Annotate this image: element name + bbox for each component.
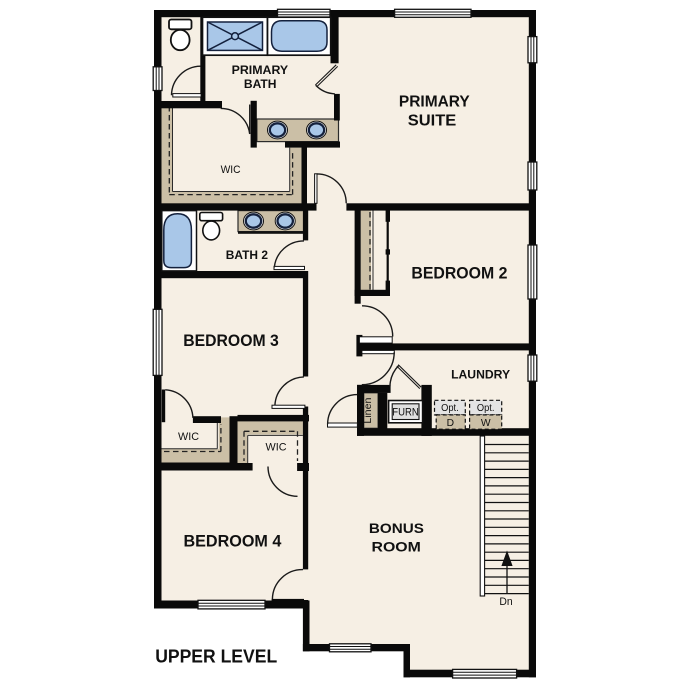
svg-text:PRIMARY: PRIMARY bbox=[399, 93, 470, 110]
svg-text:BEDROOM 4: BEDROOM 4 bbox=[183, 531, 282, 550]
svg-text:LAUNDRY: LAUNDRY bbox=[451, 367, 510, 381]
svg-text:ROOM: ROOM bbox=[372, 539, 421, 555]
svg-text:BONUS: BONUS bbox=[369, 520, 424, 536]
svg-text:PRIMARY: PRIMARY bbox=[232, 63, 289, 77]
svg-text:WIC: WIC bbox=[266, 442, 287, 454]
svg-text:FURN: FURN bbox=[392, 407, 419, 419]
svg-text:BATH 2: BATH 2 bbox=[226, 248, 268, 262]
svg-text:BEDROOM 3: BEDROOM 3 bbox=[183, 331, 279, 350]
svg-text:Opt.: Opt. bbox=[441, 403, 459, 414]
svg-text:Linen: Linen bbox=[363, 398, 374, 424]
svg-text:SUITE: SUITE bbox=[408, 112, 457, 129]
svg-text:Opt.: Opt. bbox=[477, 403, 495, 414]
svg-text:BATH: BATH bbox=[244, 77, 277, 91]
svg-text:D: D bbox=[447, 418, 454, 429]
svg-text:UPPER LEVEL: UPPER LEVEL bbox=[155, 646, 277, 667]
svg-text:WIC: WIC bbox=[178, 431, 199, 443]
svg-text:BEDROOM 2: BEDROOM 2 bbox=[411, 264, 507, 283]
svg-text:Dn: Dn bbox=[499, 596, 512, 608]
svg-text:WIC: WIC bbox=[221, 164, 241, 176]
svg-text:W: W bbox=[481, 418, 491, 429]
